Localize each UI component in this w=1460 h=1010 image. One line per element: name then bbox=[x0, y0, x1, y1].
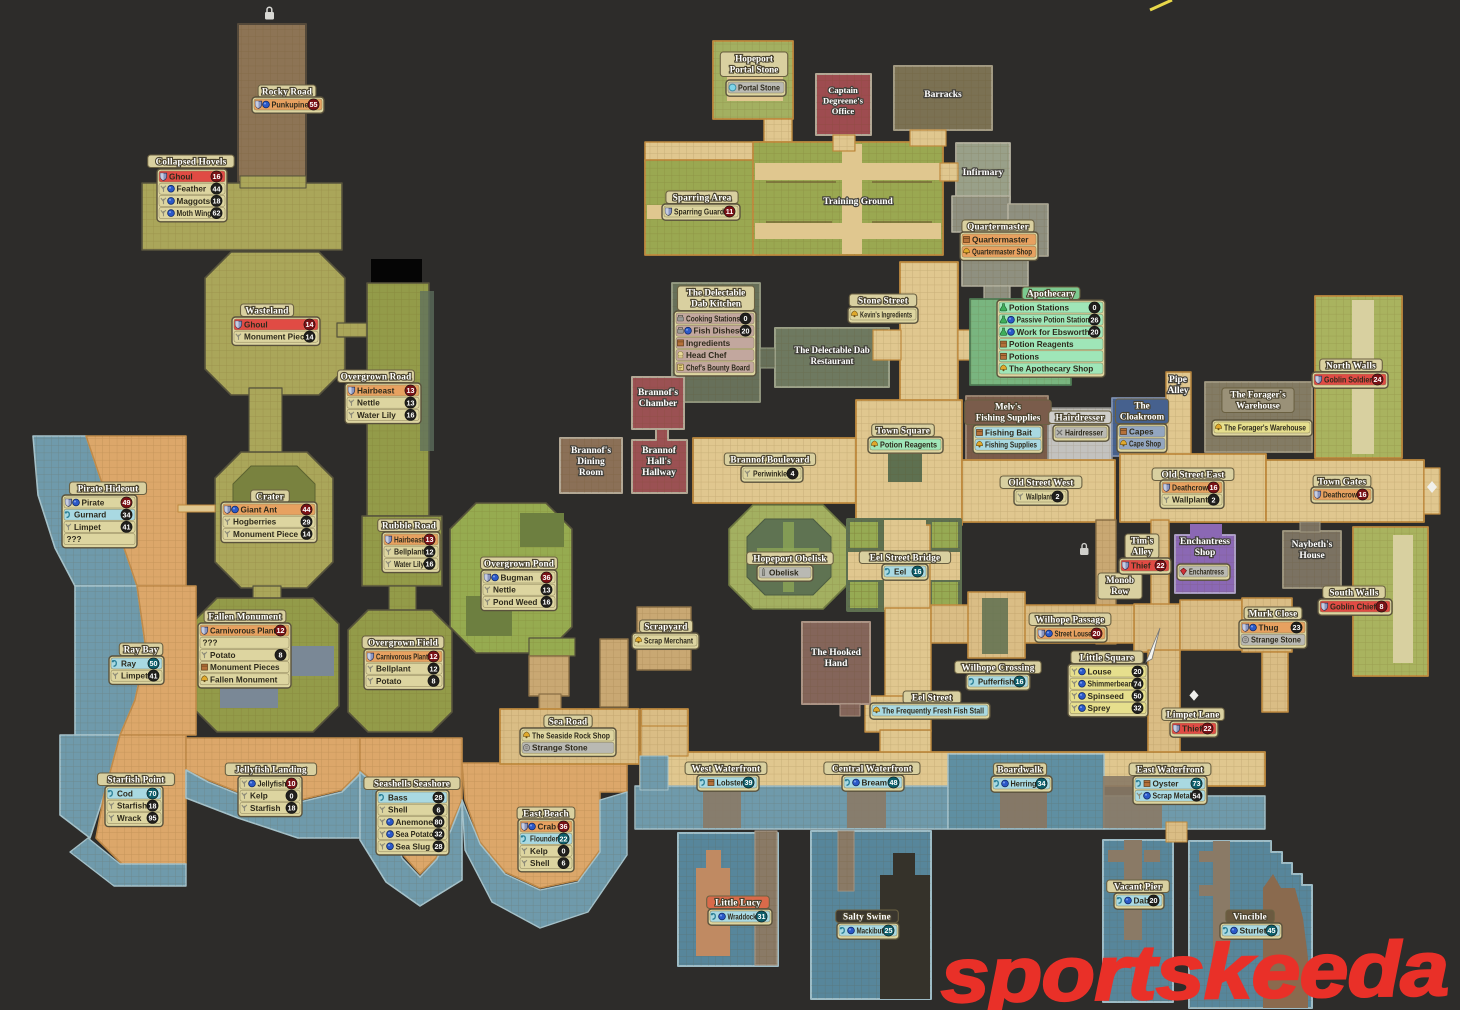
svg-text:20: 20 bbox=[1150, 896, 1158, 905]
svg-text:Periwinkle: Periwinkle bbox=[753, 470, 787, 479]
svg-text:Hall's: Hall's bbox=[647, 457, 671, 467]
svg-text:Spinseed: Spinseed bbox=[1088, 692, 1124, 701]
svg-text:6: 6 bbox=[562, 859, 566, 868]
svg-text:Wrack: Wrack bbox=[117, 814, 142, 823]
svg-text:Brannof: Brannof bbox=[642, 446, 677, 456]
svg-text:12: 12 bbox=[426, 547, 434, 556]
svg-text:Hopeport Obelisk: Hopeport Obelisk bbox=[753, 553, 827, 563]
svg-text:Cod: Cod bbox=[117, 790, 133, 799]
svg-text:Fishing Supplies: Fishing Supplies bbox=[985, 441, 1037, 450]
svg-text:36: 36 bbox=[543, 573, 551, 582]
svg-text:18: 18 bbox=[213, 197, 221, 206]
svg-text:The Frequently Fresh Fish Stal: The Frequently Fresh Fish Stall bbox=[882, 707, 984, 716]
svg-text:Monument Piece: Monument Piece bbox=[233, 530, 299, 539]
svg-text:Rubble Road: Rubble Road bbox=[382, 520, 436, 530]
svg-text:Jellyfish Landing: Jellyfish Landing bbox=[235, 764, 307, 774]
svg-text:The Apothecary Shop: The Apothecary Shop bbox=[1009, 365, 1093, 374]
svg-text:14: 14 bbox=[306, 320, 314, 329]
svg-text:Hairdresser: Hairdresser bbox=[1056, 412, 1105, 422]
svg-text:Shimmerbean: Shimmerbean bbox=[1088, 680, 1133, 689]
svg-text:Pond Weed: Pond Weed bbox=[493, 598, 537, 607]
svg-text:Starfish Point: Starfish Point bbox=[107, 774, 165, 784]
svg-text:Quartermaster: Quartermaster bbox=[972, 236, 1029, 245]
svg-text:12: 12 bbox=[430, 664, 438, 673]
svg-text:Ingredients: Ingredients bbox=[686, 339, 731, 348]
svg-text:Head Chef: Head Chef bbox=[686, 351, 727, 360]
svg-text:The: The bbox=[1134, 400, 1149, 410]
svg-text:22: 22 bbox=[1204, 724, 1212, 733]
svg-text:Deathcrow: Deathcrow bbox=[1323, 491, 1358, 500]
svg-text:The Forager's: The Forager's bbox=[1230, 389, 1286, 399]
svg-text:28: 28 bbox=[435, 793, 443, 802]
svg-text:41: 41 bbox=[150, 671, 158, 680]
svg-text:Melv's: Melv's bbox=[995, 401, 1021, 411]
svg-text:Hand: Hand bbox=[825, 659, 848, 669]
svg-text:Office: Office bbox=[832, 106, 855, 116]
svg-text:Giant Ant: Giant Ant bbox=[241, 506, 278, 515]
svg-text:Pufferfish: Pufferfish bbox=[978, 678, 1014, 687]
svg-text:55: 55 bbox=[310, 100, 318, 109]
svg-text:Potions: Potions bbox=[1009, 352, 1039, 361]
svg-text:Nettle: Nettle bbox=[493, 586, 516, 595]
svg-text:26: 26 bbox=[1091, 315, 1099, 324]
svg-text:Water Lily: Water Lily bbox=[394, 560, 424, 569]
svg-text:Limpet: Limpet bbox=[121, 672, 148, 681]
svg-text:32: 32 bbox=[1134, 704, 1142, 713]
svg-text:Pirate Hideout: Pirate Hideout bbox=[78, 483, 139, 493]
svg-text:Potion Reagents: Potion Reagents bbox=[880, 441, 937, 450]
svg-text:Sea Slug: Sea Slug bbox=[396, 842, 431, 851]
svg-text:0: 0 bbox=[1093, 303, 1097, 312]
svg-text:Fish Dishes: Fish Dishes bbox=[694, 327, 740, 336]
svg-text:28: 28 bbox=[435, 842, 443, 851]
svg-text:2: 2 bbox=[1212, 495, 1216, 504]
svg-text:Carnivorous Plant: Carnivorous Plant bbox=[210, 627, 276, 636]
svg-text:Little Lucy: Little Lucy bbox=[715, 897, 761, 907]
svg-text:70: 70 bbox=[149, 789, 157, 798]
svg-text:12: 12 bbox=[277, 626, 285, 635]
svg-text:36: 36 bbox=[560, 822, 568, 831]
svg-text:Sparring Area: Sparring Area bbox=[673, 192, 732, 202]
svg-text:Chef's Bounty Board: Chef's Bounty Board bbox=[686, 363, 750, 372]
svg-text:Potato: Potato bbox=[210, 651, 235, 660]
svg-text:Dab: Dab bbox=[1134, 897, 1149, 906]
svg-text:24: 24 bbox=[1374, 375, 1382, 384]
svg-text:South Walls: South Walls bbox=[1329, 587, 1378, 597]
svg-text:Flounder: Flounder bbox=[530, 835, 559, 844]
svg-text:Row: Row bbox=[1111, 586, 1129, 596]
svg-text:Scrap Merchant: Scrap Merchant bbox=[644, 637, 693, 646]
svg-text:Wallplant: Wallplant bbox=[1026, 493, 1052, 502]
svg-text:31: 31 bbox=[758, 912, 766, 921]
svg-text:Anemone: Anemone bbox=[396, 818, 434, 827]
svg-text:Town Gates: Town Gates bbox=[1318, 476, 1367, 486]
svg-text:Wilhope Crossing: Wilhope Crossing bbox=[961, 662, 1034, 672]
svg-text:Limpet Lane: Limpet Lane bbox=[1167, 709, 1220, 719]
svg-text:Dab Kitchen: Dab Kitchen bbox=[691, 298, 741, 308]
svg-text:Bellplant: Bellplant bbox=[394, 548, 424, 557]
svg-text:32: 32 bbox=[435, 830, 443, 839]
svg-text:Thug: Thug bbox=[1259, 624, 1279, 633]
svg-text:Feather: Feather bbox=[177, 185, 207, 194]
svg-text:74: 74 bbox=[1134, 679, 1142, 688]
svg-text:Stone Street: Stone Street bbox=[858, 295, 909, 305]
svg-text:54: 54 bbox=[1193, 791, 1201, 800]
svg-text:34: 34 bbox=[123, 510, 131, 519]
svg-text:Overgrown Pond: Overgrown Pond bbox=[484, 558, 554, 568]
svg-text:The Hooked: The Hooked bbox=[811, 648, 862, 658]
svg-text:Shell: Shell bbox=[388, 806, 408, 815]
svg-text:Monument Piece: Monument Piece bbox=[244, 333, 310, 342]
svg-text:8: 8 bbox=[432, 677, 436, 686]
svg-text:Thief: Thief bbox=[1182, 725, 1202, 734]
svg-text:41: 41 bbox=[123, 523, 131, 532]
svg-text:Warehouse: Warehouse bbox=[1236, 400, 1280, 410]
svg-text:10: 10 bbox=[288, 779, 296, 788]
svg-text:Potion Stations: Potion Stations bbox=[1009, 304, 1069, 313]
svg-text:House: House bbox=[1299, 551, 1324, 561]
svg-text:Kelp: Kelp bbox=[250, 792, 268, 801]
svg-text:50: 50 bbox=[1134, 692, 1142, 701]
svg-text:Alley: Alley bbox=[1167, 386, 1188, 396]
svg-text:sportskeeda: sportskeeda bbox=[940, 925, 1449, 1010]
svg-text:Goblin Soldier: Goblin Soldier bbox=[1324, 376, 1373, 385]
svg-text:Rocky Road: Rocky Road bbox=[262, 86, 312, 96]
svg-text:Sprey: Sprey bbox=[1088, 704, 1111, 713]
svg-text:Nettle: Nettle bbox=[357, 399, 380, 408]
svg-text:Town Square: Town Square bbox=[876, 425, 930, 435]
svg-text:Central Waterfront: Central Waterfront bbox=[832, 763, 913, 773]
svg-text:18: 18 bbox=[288, 804, 296, 813]
svg-text:The Seaside Rock Shop: The Seaside Rock Shop bbox=[532, 732, 610, 741]
svg-text:Jellyfish: Jellyfish bbox=[258, 780, 287, 789]
svg-text:Carnivorous Plant: Carnivorous Plant bbox=[376, 653, 428, 662]
svg-text:16: 16 bbox=[1016, 677, 1024, 686]
svg-text:6: 6 bbox=[437, 805, 441, 814]
svg-text:Street Louse: Street Louse bbox=[1055, 630, 1092, 639]
svg-text:Potion Reagents: Potion Reagents bbox=[1009, 340, 1074, 349]
svg-text:Thief: Thief bbox=[1131, 562, 1151, 571]
svg-text:Goblin Chief: Goblin Chief bbox=[1330, 603, 1376, 612]
svg-text:Hairbeast: Hairbeast bbox=[357, 387, 395, 396]
svg-text:The Delectable Dab: The Delectable Dab bbox=[794, 345, 870, 355]
svg-text:Cloakroom: Cloakroom bbox=[1120, 411, 1165, 421]
svg-text:West Waterfront: West Waterfront bbox=[692, 763, 761, 773]
svg-text:North Walls: North Walls bbox=[1326, 360, 1376, 370]
svg-text:Ghoul: Ghoul bbox=[244, 321, 268, 330]
svg-text:Fishing Supplies: Fishing Supplies bbox=[976, 412, 1041, 422]
svg-text:Little Square: Little Square bbox=[1080, 652, 1134, 662]
svg-text:Infirmary: Infirmary bbox=[963, 168, 1004, 178]
svg-text:The Delectable: The Delectable bbox=[687, 287, 745, 297]
svg-text:Fallen Monument: Fallen Monument bbox=[208, 611, 282, 621]
svg-text:Hallway: Hallway bbox=[642, 468, 676, 478]
svg-text:Training Ground: Training Ground bbox=[823, 197, 893, 207]
svg-text:Hopeport: Hopeport bbox=[735, 53, 774, 63]
svg-text:13: 13 bbox=[407, 398, 415, 407]
svg-text:Apothecary: Apothecary bbox=[1027, 288, 1075, 298]
svg-text:Enchantress: Enchantress bbox=[1180, 537, 1230, 547]
svg-text:Brannof's: Brannof's bbox=[638, 388, 678, 398]
svg-text:16: 16 bbox=[407, 411, 415, 420]
svg-text:Hogberries: Hogberries bbox=[233, 518, 277, 527]
svg-text:Old Street East: Old Street East bbox=[1161, 469, 1225, 479]
svg-text:Cooking Stations: Cooking Stations bbox=[686, 315, 740, 324]
svg-text:16: 16 bbox=[1210, 483, 1218, 492]
svg-text:Eel Street Bridge: Eel Street Bridge bbox=[870, 552, 941, 562]
svg-text:20: 20 bbox=[1091, 328, 1099, 337]
svg-text:Strange Stone: Strange Stone bbox=[532, 744, 588, 753]
svg-text:20: 20 bbox=[742, 326, 750, 335]
svg-text:18: 18 bbox=[149, 801, 157, 810]
svg-text:Sea Potato: Sea Potato bbox=[396, 830, 434, 839]
svg-text:14: 14 bbox=[306, 332, 314, 341]
svg-text:22: 22 bbox=[560, 834, 568, 843]
svg-text:Hairdresser: Hairdresser bbox=[1065, 429, 1104, 438]
svg-text:Pirate: Pirate bbox=[82, 499, 105, 508]
svg-text:The Forager's Warehouse: The Forager's Warehouse bbox=[1224, 424, 1306, 433]
svg-text:80: 80 bbox=[435, 818, 443, 827]
svg-text:Shop: Shop bbox=[1195, 548, 1216, 558]
svg-text:Barracks: Barracks bbox=[924, 90, 962, 100]
svg-text:Boardwalk: Boardwalk bbox=[997, 764, 1043, 774]
svg-text:Wilhope Passage: Wilhope Passage bbox=[1036, 614, 1105, 624]
svg-text:Vincible: Vincible bbox=[1233, 911, 1267, 921]
svg-text:Dining: Dining bbox=[577, 457, 605, 467]
svg-text:Cape Shop: Cape Shop bbox=[1129, 440, 1161, 449]
svg-text:Naybeth's: Naybeth's bbox=[1292, 540, 1333, 550]
svg-text:16: 16 bbox=[426, 560, 434, 569]
svg-text:Mackibut: Mackibut bbox=[857, 927, 884, 936]
svg-text:Louse: Louse bbox=[1088, 668, 1113, 677]
svg-text:Obelisk: Obelisk bbox=[769, 569, 799, 578]
svg-text:Portal Stone: Portal Stone bbox=[738, 84, 780, 93]
svg-text:4: 4 bbox=[791, 469, 795, 478]
svg-text:23: 23 bbox=[1293, 623, 1301, 632]
svg-text:Water Lily: Water Lily bbox=[357, 411, 396, 420]
svg-text:Monob: Monob bbox=[1106, 575, 1134, 585]
svg-text:Seashells Seashore: Seashells Seashore bbox=[374, 778, 450, 788]
svg-text:20: 20 bbox=[1134, 667, 1142, 676]
svg-text:Vacant Pier: Vacant Pier bbox=[1114, 881, 1162, 891]
svg-text:Bugman: Bugman bbox=[501, 574, 534, 583]
svg-text:Ray Bay: Ray Bay bbox=[124, 644, 159, 654]
svg-text:12: 12 bbox=[430, 652, 438, 661]
svg-text:20: 20 bbox=[1093, 629, 1101, 638]
svg-text:0: 0 bbox=[562, 847, 566, 856]
svg-text:2: 2 bbox=[1056, 492, 1060, 501]
svg-text:16: 16 bbox=[543, 598, 551, 607]
svg-text:Bream: Bream bbox=[862, 779, 888, 788]
svg-text:Crater: Crater bbox=[256, 491, 284, 501]
svg-text:East Waterfront: East Waterfront bbox=[1137, 764, 1204, 774]
svg-text:Scrapyard: Scrapyard bbox=[644, 621, 687, 631]
svg-text:25: 25 bbox=[885, 926, 893, 935]
svg-text:29: 29 bbox=[303, 517, 311, 526]
svg-text:34: 34 bbox=[1038, 779, 1046, 788]
svg-text:Starfish: Starfish bbox=[250, 804, 280, 813]
svg-text:Brannof Boulevard: Brannof Boulevard bbox=[730, 454, 809, 464]
svg-text:Eel Street: Eel Street bbox=[912, 692, 953, 702]
svg-text:62: 62 bbox=[213, 209, 221, 218]
svg-text:Herring: Herring bbox=[1011, 780, 1037, 789]
svg-text:Restaurant: Restaurant bbox=[811, 356, 854, 366]
svg-text:0: 0 bbox=[290, 791, 294, 800]
svg-text:Tim's: Tim's bbox=[1131, 535, 1154, 545]
svg-text:Passive Potion Station: Passive Potion Station bbox=[1017, 316, 1090, 325]
svg-text:Wallplant: Wallplant bbox=[1172, 496, 1208, 505]
svg-text:Bellplant: Bellplant bbox=[376, 665, 411, 674]
svg-text:Kevin's Ingredients: Kevin's Ingredients bbox=[860, 311, 912, 320]
svg-text:Eel: Eel bbox=[894, 568, 906, 577]
svg-text:Fallen Monument: Fallen Monument bbox=[210, 675, 278, 684]
svg-text:8: 8 bbox=[279, 651, 283, 660]
svg-text:Bass: Bass bbox=[388, 794, 408, 803]
svg-text:95: 95 bbox=[149, 814, 157, 823]
svg-text:Enchantress: Enchantress bbox=[1189, 568, 1224, 577]
svg-text:44: 44 bbox=[303, 505, 311, 514]
svg-text:0: 0 bbox=[744, 314, 748, 323]
svg-text:13: 13 bbox=[426, 535, 434, 544]
svg-text:48: 48 bbox=[890, 778, 898, 787]
svg-text:Kelp: Kelp bbox=[530, 847, 548, 856]
svg-text:Collapsed Hovels: Collapsed Hovels bbox=[156, 156, 227, 166]
svg-text:Chamber: Chamber bbox=[639, 399, 678, 409]
svg-text:Pipe: Pipe bbox=[1169, 375, 1187, 385]
svg-text:Ray: Ray bbox=[121, 660, 136, 669]
svg-text:13: 13 bbox=[543, 585, 551, 594]
svg-text:22: 22 bbox=[1157, 561, 1165, 570]
svg-text:Room: Room bbox=[579, 468, 603, 478]
svg-text:Murk Close: Murk Close bbox=[1249, 608, 1298, 618]
svg-text:Sparring Guard: Sparring Guard bbox=[674, 208, 724, 217]
svg-text:Work for Ebsworth: Work for Ebsworth bbox=[1017, 328, 1090, 337]
svg-text:Hairbeast: Hairbeast bbox=[394, 536, 424, 545]
svg-text:Strange Stone: Strange Stone bbox=[1251, 636, 1301, 645]
svg-text:Limpet: Limpet bbox=[74, 523, 101, 532]
svg-text:50: 50 bbox=[150, 659, 158, 668]
svg-text:Fishing Bait: Fishing Bait bbox=[985, 429, 1032, 438]
svg-text:Overgrown Field: Overgrown Field bbox=[368, 637, 438, 647]
svg-text:Moth Wing: Moth Wing bbox=[177, 209, 212, 218]
svg-text:16: 16 bbox=[213, 172, 221, 181]
svg-text:Starfish: Starfish bbox=[117, 802, 147, 811]
svg-text:Capes: Capes bbox=[1129, 428, 1154, 437]
svg-text:Deathcrow: Deathcrow bbox=[1172, 484, 1209, 493]
svg-text:Scrap Metal: Scrap Metal bbox=[1153, 792, 1192, 801]
svg-text:Gurnard: Gurnard bbox=[74, 511, 106, 520]
svg-text:Ghoul: Ghoul bbox=[169, 173, 193, 182]
svg-text:44: 44 bbox=[213, 184, 221, 193]
svg-text:Wasteland: Wasteland bbox=[245, 305, 288, 315]
svg-text:Oyster: Oyster bbox=[1153, 780, 1180, 789]
svg-text:Quartermaster Shop: Quartermaster Shop bbox=[972, 248, 1032, 257]
svg-text:16: 16 bbox=[1359, 490, 1367, 499]
svg-text:Captain: Captain bbox=[828, 85, 858, 95]
svg-text:14: 14 bbox=[303, 530, 311, 539]
svg-text:49: 49 bbox=[123, 498, 131, 507]
svg-text:73: 73 bbox=[1193, 779, 1201, 788]
svg-text:8: 8 bbox=[1380, 602, 1384, 611]
svg-text:Potato: Potato bbox=[376, 677, 401, 686]
svg-text:Degreene's: Degreene's bbox=[823, 96, 864, 106]
svg-text:13: 13 bbox=[407, 386, 415, 395]
svg-text:Shell: Shell bbox=[530, 859, 550, 868]
svg-text:Salty Swine: Salty Swine bbox=[843, 911, 891, 921]
svg-text:Maggots: Maggots bbox=[177, 197, 211, 206]
svg-text:Overgrown Road: Overgrown Road bbox=[341, 371, 412, 381]
svg-text:16: 16 bbox=[914, 567, 922, 576]
svg-text:???: ??? bbox=[203, 639, 218, 648]
svg-text:Old Street West: Old Street West bbox=[1009, 477, 1075, 487]
svg-text:Portal Stone: Portal Stone bbox=[730, 64, 779, 74]
svg-text:39: 39 bbox=[745, 778, 753, 787]
svg-text:Monument Pieces: Monument Pieces bbox=[210, 663, 280, 672]
svg-text:Punkupine: Punkupine bbox=[272, 101, 309, 110]
svg-text:Sea Road: Sea Road bbox=[549, 716, 588, 726]
svg-text:Brannof's: Brannof's bbox=[571, 446, 611, 456]
svg-text:Wraddock: Wraddock bbox=[728, 913, 757, 922]
svg-text:Crab: Crab bbox=[538, 823, 557, 832]
svg-text:11: 11 bbox=[726, 207, 734, 216]
svg-text:Quartermaster: Quartermaster bbox=[967, 221, 1029, 231]
svg-text:East Beach: East Beach bbox=[523, 808, 569, 818]
svg-text:???: ??? bbox=[67, 535, 82, 544]
svg-text:Lobster: Lobster bbox=[717, 779, 745, 788]
svg-text:Alley: Alley bbox=[1132, 546, 1153, 556]
